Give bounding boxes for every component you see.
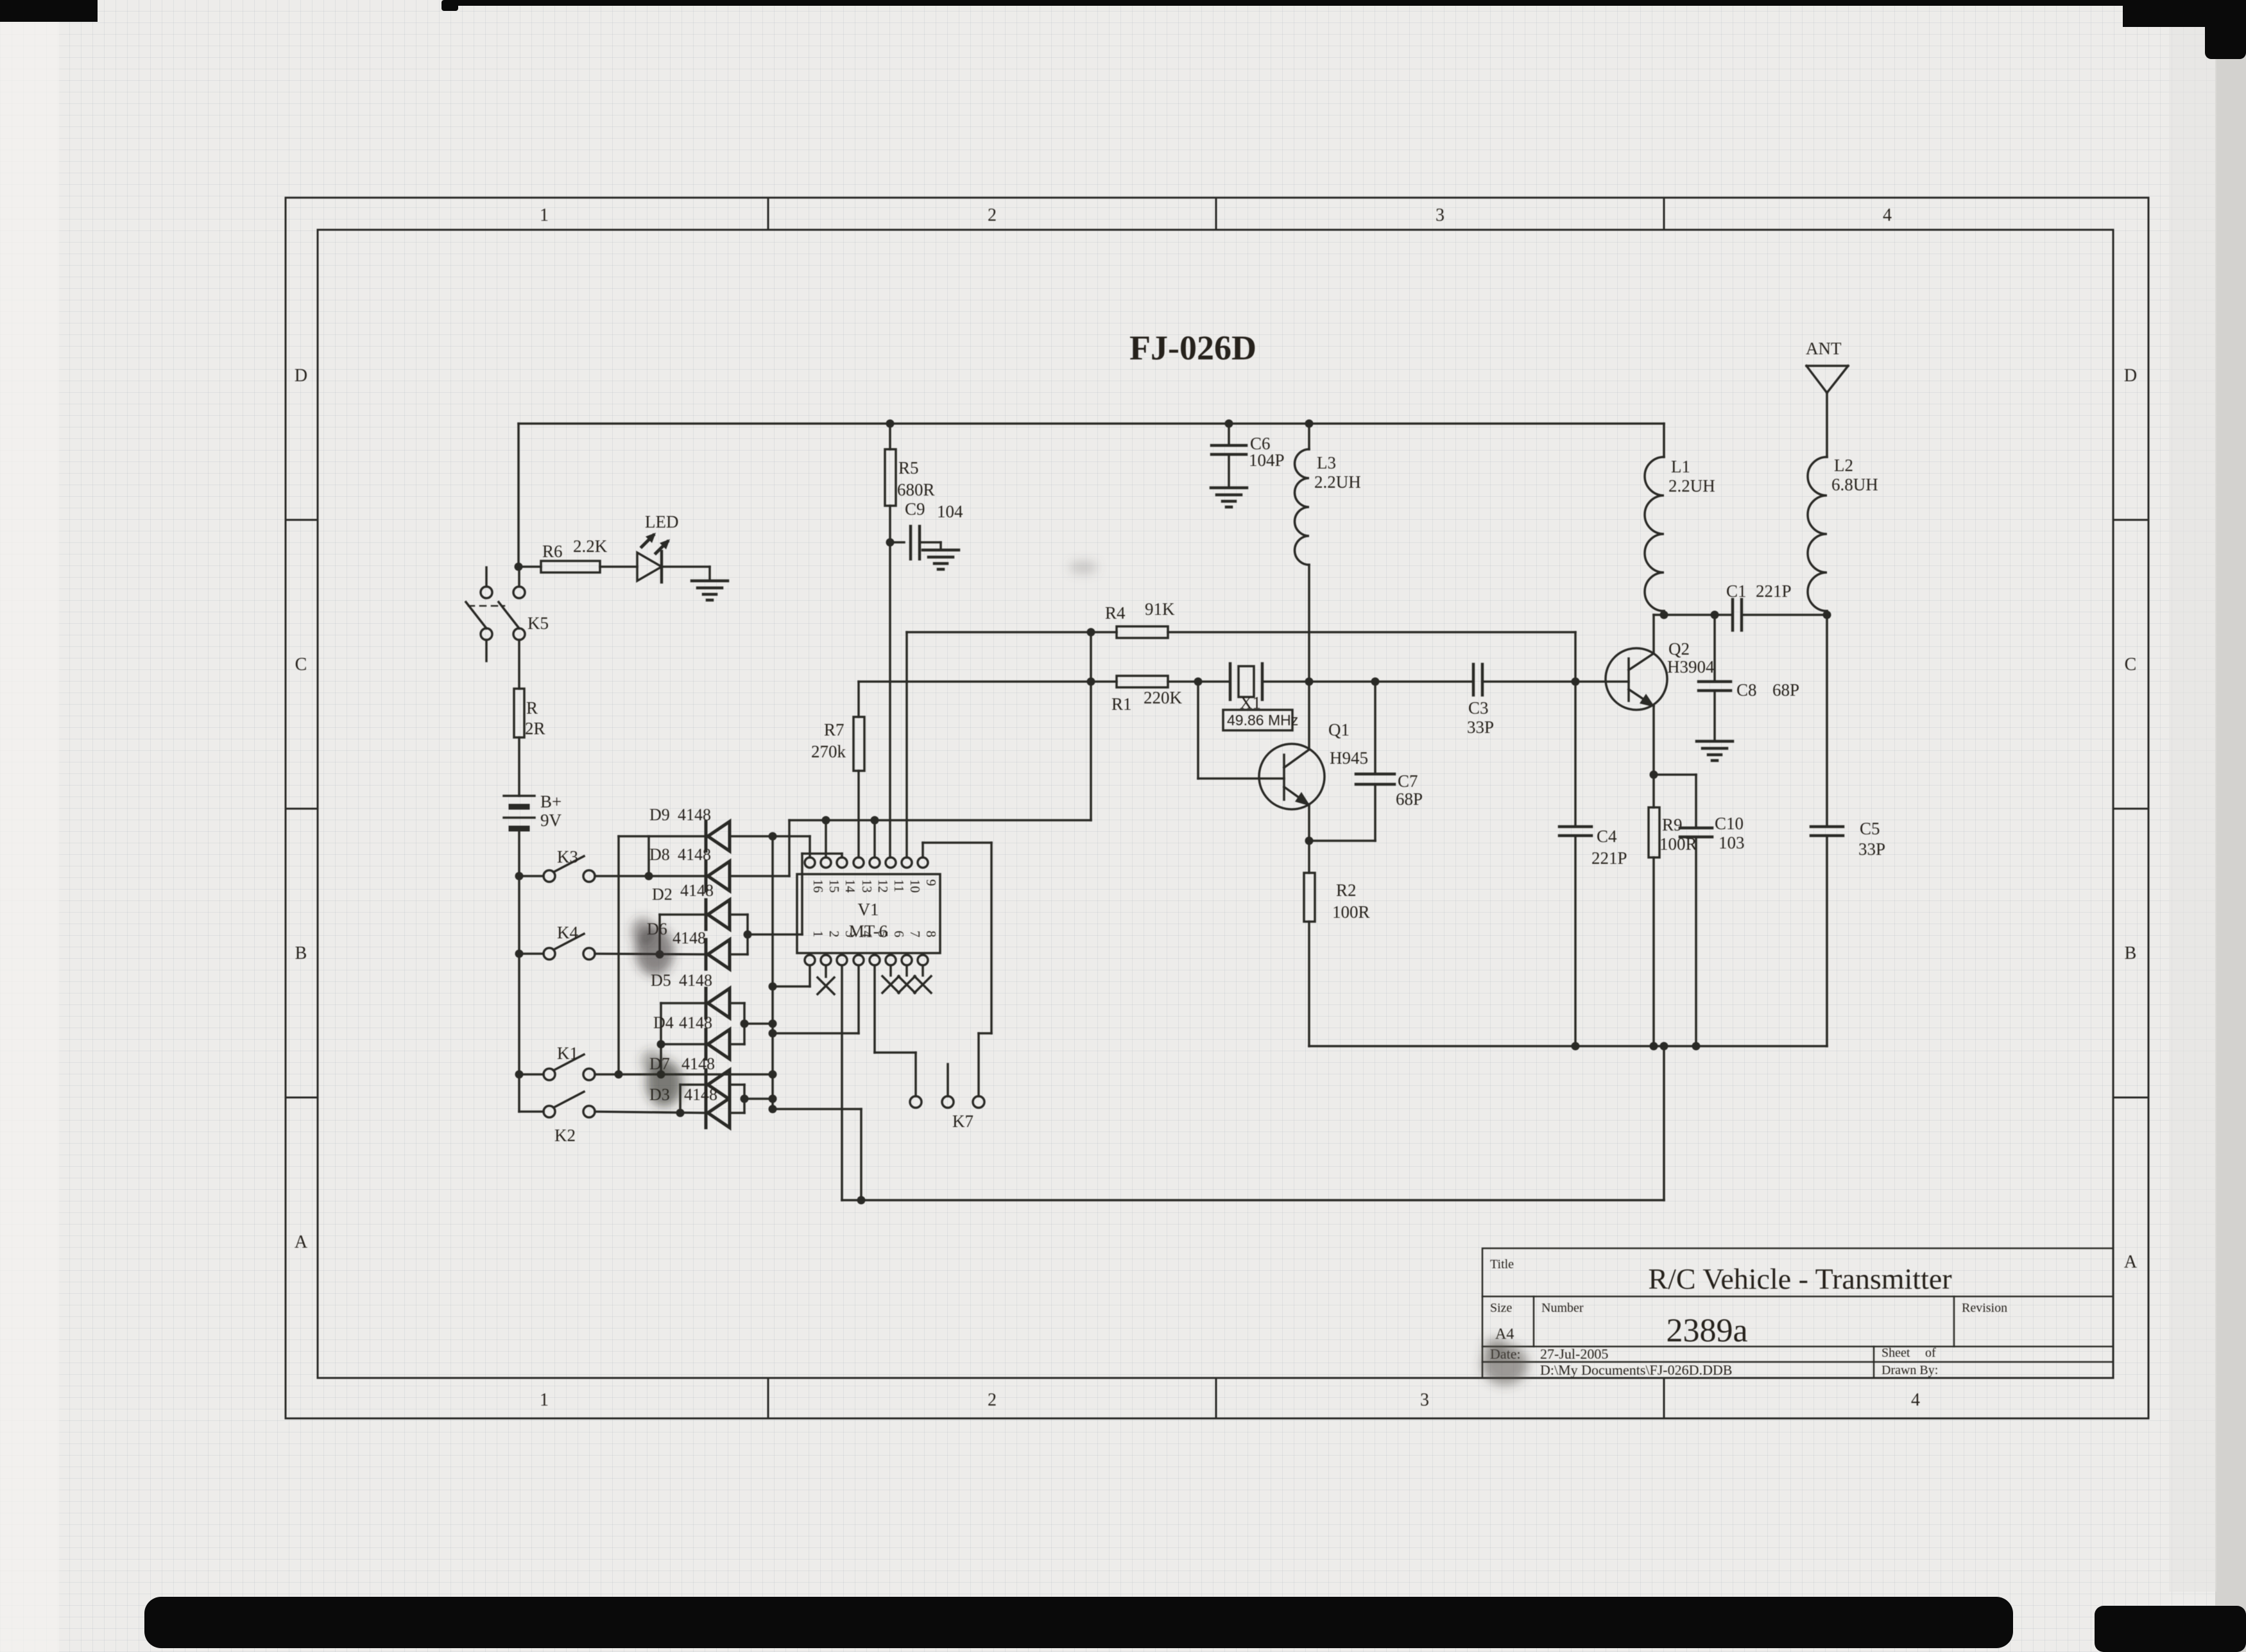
resistor-r7: R7 270k xyxy=(811,682,864,857)
scanner-black-top-left xyxy=(0,0,98,22)
diode-d5: D5 4148 xyxy=(651,971,730,1018)
scanner-black-bottom-bar xyxy=(144,1597,2013,1648)
k5-label: K5 xyxy=(527,614,549,633)
r2-ref-label: R2 xyxy=(1336,881,1357,900)
scanner-black-top-line xyxy=(449,0,2130,6)
c3-value-label: 33P xyxy=(1467,718,1494,737)
switch-k5: K5 xyxy=(466,567,549,689)
ic-pin12-number: 12 xyxy=(875,879,891,893)
scanned-schematic-page: 1 2 3 4 1 2 3 4 D C B A D C B A FJ-026D xyxy=(0,0,2246,1652)
ic-pin2-number: 2 xyxy=(827,931,842,938)
d2-ref-label: D2 xyxy=(652,885,673,904)
ground-c6 xyxy=(1211,488,1247,507)
grid-col-3-top: 3 xyxy=(1436,205,1444,225)
capacitor-c6: C6 104P xyxy=(1212,424,1285,486)
capacitor-c4: C4 221P xyxy=(1559,632,1627,1046)
ic-pin11-number: 11 xyxy=(891,879,907,892)
r7-value-label: 270k xyxy=(811,742,846,761)
title-block: Title R/C Vehicle - Transmitter Size A4 … xyxy=(1482,1248,2113,1378)
sheet-label: Sheet xyxy=(1882,1346,1910,1360)
grid-col-4-bottom: 4 xyxy=(1911,1390,1920,1410)
drawn-by-label: Drawn By: xyxy=(1882,1363,1938,1377)
r2-value-label: 100R xyxy=(1332,902,1370,922)
revision-label: Revision xyxy=(1962,1301,2007,1315)
antenna: ANT xyxy=(1806,339,1848,457)
l2-value-label: 6.8UH xyxy=(1831,475,1878,494)
battery-value-label: 9V xyxy=(540,811,562,830)
ic-pin10-number: 10 xyxy=(907,879,923,893)
ic-bottom-wires xyxy=(773,965,931,1200)
r6-ref-label: R6 xyxy=(542,542,563,561)
ic-pin14-number: 14 xyxy=(843,879,858,893)
r7-ref-label: R7 xyxy=(824,720,844,739)
size-label: Size xyxy=(1490,1301,1513,1315)
d2-value-label: 4148 xyxy=(680,881,714,900)
q1-part-label: H945 xyxy=(1330,748,1368,768)
grid-row-b-right: B xyxy=(2125,943,2137,963)
resistor-r5: R5 680R xyxy=(885,424,935,857)
l3-value-label: 2.2UH xyxy=(1314,472,1361,492)
grid-row-c-left: C xyxy=(295,655,307,675)
k2-label: K2 xyxy=(554,1126,576,1145)
date-value: 27-Jul-2005 xyxy=(1540,1346,1608,1362)
v1-ref-label: V1 xyxy=(858,900,879,919)
ic-pin4-number: 4 xyxy=(859,931,875,938)
sheet-border: 1 2 3 4 1 2 3 4 D C B A D C B A xyxy=(286,198,2148,1418)
ground-c8 xyxy=(1697,741,1733,761)
k1-label: K1 xyxy=(557,1044,578,1063)
resistor-r9: R9 100R xyxy=(1649,807,1697,1046)
c1-value-label: 221P xyxy=(1756,581,1792,601)
d8-ref-label: D8 xyxy=(649,845,670,864)
ic-pin8-number: 8 xyxy=(923,931,939,938)
capacitor-c5: C5 33P xyxy=(1811,819,1885,1046)
resistor-r6: R6 2.2K xyxy=(515,537,638,572)
number-value: 2389a xyxy=(1666,1312,1747,1349)
resistor-r1: R1 220K xyxy=(859,628,1230,821)
d4-value-label: 4148 xyxy=(679,1013,712,1032)
battery-ref-label: B+ xyxy=(540,792,561,811)
ic-pin7-number: 7 xyxy=(907,931,923,938)
k4-label: K4 xyxy=(557,923,578,942)
drawing-title: FJ-026D xyxy=(1129,329,1256,367)
r-limit-ref-label: R xyxy=(526,698,538,718)
c8-value-label: 68P xyxy=(1772,680,1799,700)
inductor-l3: L3 2.2UH xyxy=(1295,424,1361,565)
grid-row-a-right: A xyxy=(2124,1252,2138,1272)
grid-row-a-left: A xyxy=(295,1232,308,1252)
grid-col-4-top: 4 xyxy=(1883,205,1892,225)
c1-ref-label: C1 xyxy=(1726,581,1747,601)
battery-9v: B+ 9V xyxy=(504,792,562,1112)
title-label: Title xyxy=(1490,1257,1514,1271)
grid-col-1-bottom: 1 xyxy=(540,1390,549,1410)
scanner-black-top-right-corner xyxy=(2205,0,2246,59)
of-label: of xyxy=(1925,1346,1936,1360)
scanner-edge-right-shade xyxy=(2215,0,2246,1652)
grid-row-b-left: B xyxy=(295,943,307,963)
ic-v1-mt6: V1 MT-6 16 15 14 13 12 11 10 9 1 2 3 4 5… xyxy=(797,857,940,965)
c10-value-label: 103 xyxy=(1719,833,1745,852)
c3-ref-label: C3 xyxy=(1468,698,1489,718)
ic-pin9-number: 9 xyxy=(923,879,939,886)
number-label: Number xyxy=(1541,1301,1584,1315)
r5-value-label: 680R xyxy=(897,480,935,499)
d5-value-label: 4148 xyxy=(679,971,712,990)
c9-ref-label: C9 xyxy=(905,499,925,519)
k3-label: K3 xyxy=(557,847,578,866)
d7-value-label: 4148 xyxy=(682,1054,715,1073)
r4-ref-label: R4 xyxy=(1105,603,1126,623)
x1-frequency-label: 49.86 MHz xyxy=(1227,712,1298,728)
transistor-q1: Q1 H945 xyxy=(1198,565,1368,845)
scan-artifacts xyxy=(0,0,2246,1652)
grid-row-d-right: D xyxy=(2124,366,2137,386)
l1-ref-label: L1 xyxy=(1671,457,1690,476)
grid-col-3-bottom: 3 xyxy=(1420,1390,1429,1410)
q2-ref-label: Q2 xyxy=(1668,639,1690,658)
inductor-l1: L1 2.2UH xyxy=(1645,424,1715,615)
c6-value-label: 104P xyxy=(1249,451,1285,470)
l3-ref-label: L3 xyxy=(1317,453,1336,472)
led-d-indicator: LED xyxy=(637,512,710,582)
c10-ref-label: C10 xyxy=(1715,814,1744,833)
c5-value-label: 33P xyxy=(1858,839,1885,859)
q2-part-label: H3904 xyxy=(1667,657,1715,676)
c7-value-label: 68P xyxy=(1396,789,1423,809)
pencil-mark xyxy=(1069,561,1097,574)
r4-value-label: 91K xyxy=(1145,599,1175,619)
c9-value-label: 104 xyxy=(937,502,963,521)
wire-bottom-rails xyxy=(842,1042,1827,1205)
inductor-l2: L2 6.8UH xyxy=(1808,456,1878,827)
r1-ref-label: R1 xyxy=(1111,694,1132,714)
led-label: LED xyxy=(645,512,678,531)
diode-d4: D4 4148 xyxy=(653,1013,730,1059)
wire-top-rail xyxy=(519,420,1664,567)
grid-row-c-right: C xyxy=(2125,655,2137,675)
scanner-edge-right-inner xyxy=(2169,26,2216,1592)
ic-pin3-number: 3 xyxy=(843,931,858,938)
d9-ref-label: D9 xyxy=(649,805,670,824)
grid-col-2-bottom: 2 xyxy=(988,1390,997,1410)
d9-value-label: 4148 xyxy=(678,805,711,824)
ic-pin13-number: 13 xyxy=(859,879,875,893)
ic-pin5-number: 5 xyxy=(875,931,891,938)
d6-value-label: 4148 xyxy=(673,929,706,947)
ic-pin1-number: 1 xyxy=(810,931,826,938)
c5-ref-label: C5 xyxy=(1860,819,1880,838)
grid-row-d-left: D xyxy=(295,366,307,386)
d3-value-label: 4148 xyxy=(684,1085,717,1104)
capacitor-c8: C8 68P xyxy=(1699,615,1799,739)
ic-pin6-number: 6 xyxy=(891,931,907,938)
r5-ref-label: R5 xyxy=(898,458,919,478)
transistor-q2: Q2 H3904 xyxy=(1606,615,1715,807)
diode-d9: D9 4148 xyxy=(649,805,730,851)
ground-led xyxy=(692,581,728,600)
grid-col-2-top: 2 xyxy=(988,205,997,225)
capacitor-c3: C3 33P xyxy=(1467,664,1629,737)
ic-pin15-number: 15 xyxy=(827,879,842,893)
c7-ref-label: C7 xyxy=(1398,771,1418,791)
l1-value-label: 2.2UH xyxy=(1668,476,1715,495)
l2-ref-label: L2 xyxy=(1834,456,1853,475)
q1-ref-label: Q1 xyxy=(1328,720,1350,739)
c4-value-label: 221P xyxy=(1591,848,1627,868)
grid-col-1-top: 1 xyxy=(540,205,549,225)
scanner-edge-left-shade xyxy=(0,0,59,1652)
r6-value-label: 2.2K xyxy=(573,537,608,556)
ground-c9 xyxy=(923,550,959,569)
file-path: D:\My Documents\FJ-026D.DDB xyxy=(1540,1362,1732,1378)
ant-label: ANT xyxy=(1806,339,1842,358)
resistor-r-limit: R 2R xyxy=(514,689,545,796)
ic-pin16-number: 16 xyxy=(810,879,826,893)
r-limit-value-label: 2R xyxy=(525,719,545,738)
scanner-black-bottom-right xyxy=(2095,1606,2246,1652)
c8-ref-label: C8 xyxy=(1736,680,1757,700)
k7-label: K7 xyxy=(952,1112,973,1131)
capacitor-c1: C1 221P xyxy=(1654,581,1827,630)
switch-k3: K3 xyxy=(515,847,704,882)
r1-value-label: 220K xyxy=(1144,688,1183,707)
d8-value-label: 4148 xyxy=(678,845,711,864)
resistor-r2: R2 100R xyxy=(1304,841,1370,1046)
c4-ref-label: C4 xyxy=(1597,827,1617,846)
d4-ref-label: D4 xyxy=(653,1013,674,1032)
r9-ref-label: R9 xyxy=(1662,815,1683,834)
document-title: R/C Vehicle - Transmitter xyxy=(1648,1262,1951,1295)
